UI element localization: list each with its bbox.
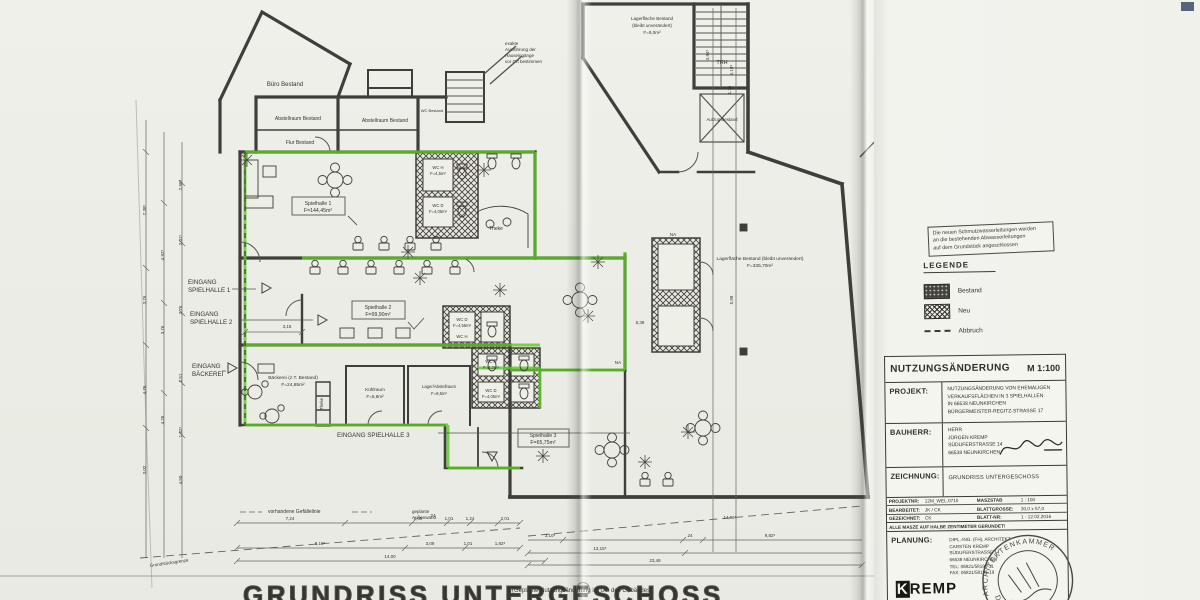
- entrance-leader-lines: [222, 289, 630, 433]
- zeichnung-label: ZEICHNUNG:: [886, 467, 943, 497]
- dim-8-15: 8,15⁵: [315, 541, 326, 546]
- dim-v11: 3,02: [142, 465, 147, 474]
- label-wc-h-3-area: F=4,2m²: [483, 365, 499, 370]
- legend-item-neu: Neu: [924, 302, 1064, 319]
- room-label-trh: TRH: [716, 60, 727, 66]
- planung-label: PLANUNG:: [887, 531, 943, 545]
- scanned-floorplan-page: Büro Bestand Abstellraum Bestand Abstell…: [0, 0, 1200, 600]
- room-label-spielhalle1: Spielhalle 1: [305, 201, 332, 207]
- room-label-aufzug: Aufzug Bestand: [706, 117, 738, 122]
- room-label-lagerraum: Lager/Abstellraum: [422, 384, 456, 389]
- room-label-spielhalle3: Spielhalle 3: [530, 433, 557, 439]
- dim-v15: 5,98: [729, 295, 734, 304]
- bauherr-lines: HERR JÜRGEN KREMP SÜDUFERSTRASSE 14 6653…: [943, 423, 1003, 467]
- entrance-label-spielhalle1-2: SPIELHALLE 1: [188, 287, 231, 294]
- stairs-details: [446, 4, 746, 142]
- title-block: NUTZUNGSÄNDERUNG M 1:100 PROJEKT: NUTZUN…: [884, 354, 1069, 600]
- walls-layer: [220, 4, 868, 497]
- dim-v1: 7,38⁵: [142, 205, 147, 216]
- note-slope-line: vorhandene Gefällelinie: [268, 509, 321, 515]
- entrance-label-spielhalle2-2: SPIELHALLE 2: [190, 319, 233, 326]
- legend-label-abbruch: Abbruch: [958, 327, 982, 334]
- title-block-zeichnung-row: ZEICHNUNG: GRUNDRISS UNTERGESCHOSS: [886, 466, 1066, 498]
- legend-title: LEGENDE: [923, 260, 995, 273]
- room-label-flur: Flur Bestand: [286, 140, 315, 146]
- room-label-lager-top-2: (bleibt unverändert): [632, 23, 672, 28]
- entrance-labels: EINGANG SPIELHALLE 1 EINGANG SPIELHALLE …: [188, 279, 410, 439]
- legend-item-abbruch: Abbruch: [924, 322, 1064, 338]
- signature: [998, 434, 1064, 461]
- title-block-projekt-row: PROJEKT: NUTZUNGSÄNDERUNG VON EHEMALIGEN…: [885, 381, 1065, 424]
- title-block-planung-row: PLANUNG: DIPL.-ING. (FH), ARCHITEKT CARS…: [887, 530, 1068, 600]
- dim-3-09: 3,09: [426, 541, 435, 546]
- label-wc-d-2-area: F=4,55m²: [453, 323, 472, 328]
- note-planned-wall-1: geplante: [412, 509, 430, 514]
- entrance-label-spielhalle2: EINGANG: [190, 311, 219, 318]
- bauherr-line-3: SÜDUFERSTRASSE 14: [948, 442, 1003, 450]
- room-label-abstellraum-2: Abstellraum Bestand: [362, 118, 408, 124]
- bearbeitet-value: JK / CK: [925, 506, 977, 512]
- room-label-kuehlraum-area: F=5,8m²: [366, 394, 384, 399]
- title-block-scale: M 1:100: [1027, 362, 1060, 372]
- dim-1-24a: 1,24: [466, 516, 475, 521]
- label-wc-h-1-area: F=4,5m²: [430, 171, 446, 176]
- sewage-note-box: Die neuen Schmutzwasserleitungen werden …: [927, 221, 1054, 257]
- label-wc-h-1: WC H: [432, 165, 443, 170]
- label-wc-d-3-area: F=4,05m²: [482, 394, 501, 399]
- dim-v3: 2,98⁵: [178, 180, 183, 191]
- note-stairs-2: Ausführung der: [505, 47, 536, 52]
- label-wc-d-1: WC D: [432, 203, 443, 208]
- bearbeitet-label: BEARBEITET:: [889, 507, 925, 512]
- label-wc-d-3: WC D: [485, 388, 496, 393]
- legend-item-bestand: Bestand: [924, 282, 1064, 299]
- bauherr-line-4: 66538 NEUNKIRCHEN: [948, 449, 1003, 457]
- dim-1-01b: 1,01: [464, 541, 473, 546]
- dim-5-38: 5,38: [636, 320, 645, 325]
- label-wc-h-2: WC H: [456, 334, 467, 339]
- room-label-lager-top-1: Lagerfläche Bestand: [631, 16, 674, 21]
- dim-7-24: 7,24: [286, 516, 295, 521]
- label-na-1: NA: [670, 232, 677, 237]
- label-theke-1: Theke: [489, 226, 503, 232]
- label-theke-2: Theke: [319, 397, 324, 410]
- room-label-lager-top-3: F=9,0m²: [643, 30, 661, 35]
- note-stairs-1: exakte: [505, 41, 519, 46]
- room-label-spielhalle3-area: F=65,75m²: [530, 440, 556, 446]
- label-wc-h-3: WC H: [485, 359, 496, 364]
- label-wc-d-2: WC D: [456, 317, 467, 322]
- room-label-wc-bestand: WC Bestand: [421, 108, 443, 113]
- bauherr-label: BAUHERR:: [886, 423, 944, 467]
- legend-swatch-neu: [924, 304, 950, 319]
- title-block-header: NUTZUNGSÄNDERUNG M 1:100: [885, 355, 1065, 383]
- dim-14-96: 14,96⁵: [723, 515, 736, 520]
- dim-1-09: 1,09: [414, 516, 423, 521]
- dim-1-82: 1,82⁵: [495, 541, 506, 546]
- paper-edge: [136, 100, 152, 588]
- drawing-subtitle: (Geplante Nutzungsänderung im UG des Geb…: [512, 588, 652, 594]
- dim-v12: 1,82⁵: [178, 427, 183, 438]
- dim-14-00: 14,00: [384, 554, 396, 559]
- note-property-boundary: Grundstücksgrenze: [149, 558, 189, 568]
- dim-v13: 3,94⁵: [705, 50, 710, 61]
- legend-label-neu: Neu: [958, 307, 970, 314]
- dim-9-82: 9,82⁵: [765, 533, 776, 538]
- entrance-label-baeckerei-2: BÄCKEREI: [192, 371, 224, 378]
- room-label-abstellraum-1: Abstellraum Bestand: [275, 116, 321, 122]
- entrance-label-spielhalle1: EINGANG: [188, 279, 217, 286]
- dim-3-10: 3,10⁵: [545, 533, 556, 538]
- projektnr-value: 12M_WEL.0710: [925, 498, 977, 504]
- note-stairs-4: vor Ort bestimmen: [505, 59, 543, 64]
- legend-swatch-abbruch: [924, 330, 950, 332]
- gezeichnet-label: GEZEICHNET:: [889, 515, 925, 520]
- zeichnung-value: GRUNDRISS UNTERGESCHOSS: [943, 466, 1039, 496]
- label-wc-d-1-area: F=4,05m²: [429, 209, 448, 214]
- dim-v7: 4,76: [142, 385, 147, 394]
- dim-13-15: 13,15⁵: [593, 546, 606, 551]
- projektnr-label: PROJEKTNR:: [889, 499, 925, 504]
- maszstab-value: 1 : 100: [1021, 497, 1065, 503]
- room-label-kuehlraum: Kühlraum: [365, 387, 385, 392]
- room-label-baeckerei-area: F=24,85m²: [281, 382, 305, 388]
- legend: LEGENDE Bestand Neu Abbruch: [923, 259, 1064, 343]
- room-label-spielhalle2-area: F=99,90m²: [365, 312, 391, 318]
- dim-1-01a: 1,01: [445, 516, 454, 521]
- dim-v8: 4,50: [178, 475, 183, 484]
- dim-1-75: 1,75: [727, 85, 732, 94]
- legend-swatch-bestand: [924, 284, 950, 299]
- dim-v2: 4,92⁵: [160, 250, 165, 261]
- maszstab-label: MASZSTAB: [977, 498, 1021, 504]
- dim-3-15: 3,15: [283, 324, 292, 329]
- dim-v14: 6,18⁵: [729, 65, 734, 76]
- legend-label-bestand: Bestand: [958, 287, 982, 294]
- room-label-lager-mid-area: F=335,70m²: [747, 263, 773, 269]
- title-block-title: NUTZUNGSÄNDERUNG: [890, 362, 1010, 374]
- room-label-lager-mid: Lagerfläche Bestand (bleibt unverändert): [717, 256, 804, 262]
- note-stairs-3: Hauseingänge: [505, 53, 535, 58]
- title-block-bauherr-row: BAUHERR: HERR JÜRGEN KREMP SÜDUFERSTRASS…: [886, 422, 1067, 468]
- dim-2-01: 2,01: [501, 516, 510, 521]
- projekt-line-4: BÜRGERMEISTER-REGITZ-STRASSE 17: [948, 407, 1051, 416]
- blattnr-label: BLATT-NR:: [977, 514, 1021, 520]
- dim-v9: 1,51: [178, 373, 183, 382]
- room-label-lagerraum-area: F=9,5m²: [431, 391, 447, 396]
- corner-mark: [1181, 2, 1194, 11]
- dim-v6: 3,76: [160, 325, 165, 334]
- room-label-baeckerei: Bäckerei (z.T. Bestand): [268, 375, 318, 381]
- dim-v10: 4,26: [160, 415, 165, 424]
- blattgroesse-label: BLATTGROSSE:: [977, 506, 1021, 512]
- room-label-buero: Büro Bestand: [267, 82, 303, 88]
- dim-24b: 24: [687, 533, 693, 538]
- dim-v5: 3,76: [142, 295, 147, 304]
- dim-v5b: 3,76: [178, 305, 183, 314]
- projekt-lines: NUTZUNGSÄNDERUNG VON EHEMALIGEN VERKAUFS…: [942, 381, 1050, 422]
- projekt-label: PROJEKT:: [885, 382, 942, 423]
- dim-24a: 24: [430, 513, 436, 518]
- label-na-2: NA: [615, 360, 622, 365]
- room-label-spielhalle1-area: F=144,45m²: [304, 208, 332, 214]
- dim-v4: 3,01⁵: [178, 235, 183, 246]
- entrance-label-baeckerei: EINGANG: [192, 363, 221, 370]
- gezeichnet-value: CK: [925, 515, 977, 521]
- blattgroesse-value: 30,0 x 57,0: [1021, 505, 1065, 511]
- dim-23-48: 23,48: [649, 558, 661, 563]
- room-label-spielhalle2: Spielhalle 2: [365, 305, 392, 311]
- kremp-logo: KREMP: [896, 580, 957, 598]
- entrance-label-spielhalle3: EINGANG SPIELHALLE 3: [337, 432, 410, 439]
